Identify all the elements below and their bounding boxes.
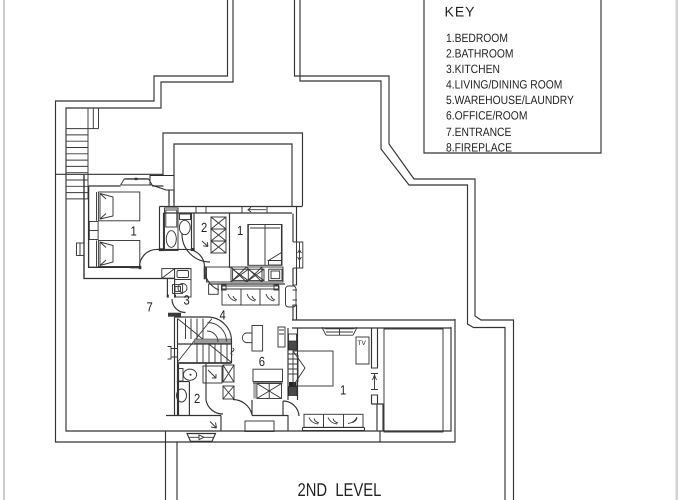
svg-text:2ND LEVEL: 2ND LEVEL: [298, 479, 382, 500]
svg-text:1: 1: [131, 224, 137, 239]
svg-text:5.WAREHOUSE/LAUNDRY: 5.WAREHOUSE/LAUNDRY: [446, 93, 574, 107]
svg-text:1: 1: [340, 383, 346, 398]
svg-text:4: 4: [220, 308, 226, 323]
svg-text:6.OFFICE/ROOM: 6.OFFICE/ROOM: [446, 109, 527, 123]
svg-text:3: 3: [184, 293, 190, 308]
svg-text:1.BEDROOM: 1.BEDROOM: [446, 31, 508, 45]
svg-text:2: 2: [201, 220, 207, 235]
svg-text:TV: TV: [358, 340, 367, 347]
svg-text:4.LIVING/DINING ROOM: 4.LIVING/DINING ROOM: [446, 78, 562, 92]
svg-text:8.FIREPLACE: 8.FIREPLACE: [446, 141, 512, 155]
svg-text:3.KITCHEN: 3.KITCHEN: [446, 62, 500, 76]
svg-text:6: 6: [259, 354, 265, 369]
svg-text:2.BATHROOM: 2.BATHROOM: [446, 47, 513, 61]
svg-text:7.ENTRANCE: 7.ENTRANCE: [446, 125, 511, 139]
svg-text:KEY: KEY: [445, 4, 476, 20]
svg-text:2: 2: [194, 391, 200, 406]
svg-text:7: 7: [147, 300, 153, 315]
svg-text:1: 1: [237, 223, 243, 238]
